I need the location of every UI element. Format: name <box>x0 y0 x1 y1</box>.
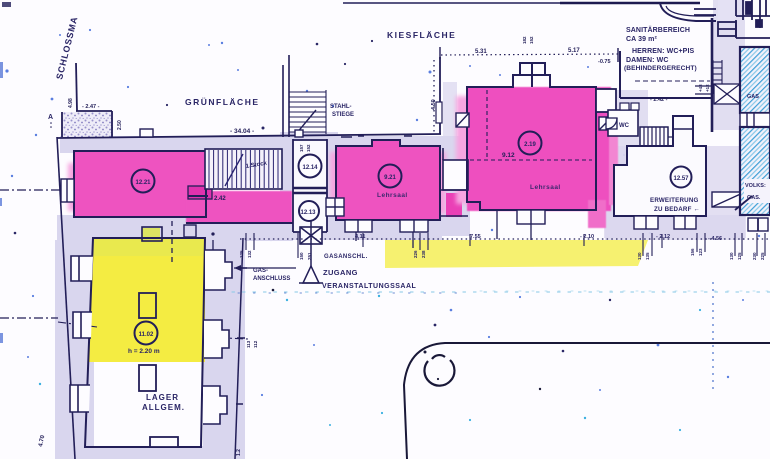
svg-text:SANITÄRBEREICH: SANITÄRBEREICH <box>626 26 690 34</box>
svg-text:132: 132 <box>247 250 252 258</box>
svg-text:112: 112 <box>253 340 258 348</box>
svg-text:156: 156 <box>690 248 695 256</box>
svg-text:GAS: GAS <box>747 94 759 100</box>
svg-text:GAS-: GAS- <box>253 268 268 274</box>
svg-text:12.14: 12.14 <box>302 165 318 171</box>
svg-text:152: 152 <box>529 36 534 44</box>
svg-text:- 34.04 -: - 34.04 - <box>230 128 254 135</box>
svg-text:- 2.12: - 2.12 <box>656 234 670 240</box>
svg-text:h = 2.20 m: h = 2.20 m <box>128 348 160 355</box>
svg-text:12.21: 12.21 <box>135 180 151 186</box>
svg-text:DAMEN: WC: DAMEN: WC <box>626 57 669 64</box>
svg-text:5.17: 5.17 <box>568 48 580 54</box>
svg-text:- 2.10: - 2.10 <box>580 234 594 240</box>
svg-text:4.50: 4.50 <box>431 99 437 110</box>
svg-text:9.12: 9.12 <box>502 152 515 159</box>
svg-text:157: 157 <box>299 144 304 152</box>
svg-text:VERANSTALTUNGSSAAL: VERANSTALTUNGSSAAL <box>322 283 417 290</box>
svg-text:VOLKS:: VOLKS: <box>745 183 766 189</box>
svg-text:STIEGE: STIEGE <box>332 112 354 118</box>
svg-text:+43: +43 <box>698 84 703 92</box>
svg-text:KIESFLÄCHE: KIESFLÄCHE <box>387 30 456 40</box>
svg-text:ZUGANG: ZUGANG <box>323 268 358 277</box>
svg-text:9.21: 9.21 <box>384 175 396 181</box>
svg-text:LAGER: LAGER <box>146 393 179 402</box>
svg-text:ERWEITERUNG: ERWEITERUNG <box>650 197 699 204</box>
svg-text:HERREN: WC+PIS: HERREN: WC+PIS <box>632 48 694 55</box>
svg-text:ZU BEDARF ←: ZU BEDARF ← <box>654 206 700 213</box>
svg-text:WC: WC <box>619 123 630 129</box>
svg-text:152: 152 <box>306 144 311 152</box>
svg-text:2.42: 2.42 <box>214 196 226 202</box>
svg-text:11.02: 11.02 <box>139 332 154 338</box>
svg-text:1.2: 1.2 <box>236 449 242 456</box>
svg-text:- 4.56 -: - 4.56 - <box>708 236 726 242</box>
svg-text:226: 226 <box>413 250 418 258</box>
svg-text:125: 125 <box>737 252 742 260</box>
svg-text:2.50: 2.50 <box>117 120 123 130</box>
svg-text:(BEHINDERGERECHT): (BEHINDERGERECHT) <box>624 65 697 72</box>
svg-text:130: 130 <box>637 252 642 260</box>
svg-text:123: 123 <box>698 248 703 256</box>
svg-text:182: 182 <box>522 36 527 44</box>
svg-text:4.11: 4.11 <box>355 234 365 240</box>
svg-text:135: 135 <box>645 252 650 260</box>
svg-text:GASANSCHL.: GASANSCHL. <box>324 254 368 260</box>
svg-text:12.57: 12.57 <box>673 176 689 182</box>
svg-text:7.55: 7.55 <box>470 234 481 240</box>
svg-text:Lehrsaal: Lehrsaal <box>377 192 408 199</box>
svg-text:CA 39 m²: CA 39 m² <box>626 36 657 43</box>
svg-text:12.13: 12.13 <box>300 210 316 216</box>
svg-text:230: 230 <box>752 252 757 260</box>
svg-text:5.31: 5.31 <box>475 49 487 55</box>
svg-text:A: A <box>48 114 53 121</box>
svg-text:STAHL-: STAHL- <box>330 104 352 110</box>
svg-text:ALLGEM.: ALLGEM. <box>142 403 185 412</box>
svg-text:225: 225 <box>760 252 765 260</box>
svg-text:ANSCHLUSS: ANSCHLUSS <box>253 276 290 282</box>
svg-text:-0.75: -0.75 <box>598 59 611 65</box>
svg-text:GRÜNFLÄCHE: GRÜNFLÄCHE <box>185 97 260 107</box>
svg-text:2.19: 2.19 <box>524 142 536 148</box>
svg-text:- 2.47 -: - 2.47 - <box>82 104 100 110</box>
svg-text:Lehrsaal: Lehrsaal <box>530 184 561 191</box>
svg-text:113: 113 <box>246 340 251 348</box>
svg-text:+12: +12 <box>705 84 710 92</box>
svg-text:150: 150 <box>299 252 304 260</box>
svg-text:238: 238 <box>421 250 426 258</box>
svg-text:130: 130 <box>729 252 734 260</box>
svg-text:4.98: 4.98 <box>68 98 74 108</box>
